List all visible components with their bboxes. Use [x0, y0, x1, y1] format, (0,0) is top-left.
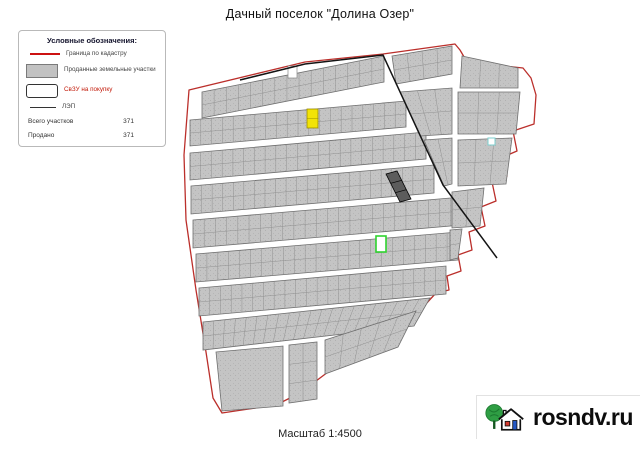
- red-boundary-line-swatch: [30, 53, 60, 55]
- total-parcels-label: Всего участков: [28, 118, 73, 125]
- legend-item-label: Граница по кадастру: [66, 51, 127, 58]
- rosndv-logo-icon: [485, 400, 527, 436]
- parcel-strip-e-block-2: [458, 92, 520, 134]
- total-parcels-value: 371: [123, 118, 134, 125]
- parcel-strip-e-block-4: [458, 138, 512, 186]
- green-outlined-parcel: [376, 236, 386, 252]
- legend-box: Условные обозначения: Граница по кадастр…: [18, 30, 166, 147]
- legend-item-label: ЛЭП: [62, 104, 75, 111]
- sold-parcels-value: 371: [123, 132, 134, 139]
- legend-item-label: Проданные земельные участки: [64, 67, 156, 74]
- total-parcels-row: Всего участков 371: [28, 118, 134, 125]
- legend-item-label: СвЗУ на покупку: [64, 87, 112, 94]
- parcel-strip-s-block-1: [289, 342, 317, 403]
- sold-parcels-label: Продано: [28, 132, 54, 139]
- legend-item-parcels-for-sale: СвЗУ на покупку: [26, 84, 158, 98]
- watermark-text: rosndv.ru: [533, 404, 633, 431]
- watermark-badge: rosndv.ru: [476, 395, 640, 439]
- teal-marked-parcel: [488, 138, 495, 145]
- parcel-strip-e-block-6: [450, 229, 462, 260]
- gray-parcel-swatch: [26, 64, 58, 78]
- legend-item-cadastre-boundary: Граница по кадастру: [26, 51, 158, 58]
- legend-item-sold-parcels: Проданные земельные участки: [26, 64, 158, 78]
- legend-title: Условные обозначения:: [26, 36, 158, 45]
- legend-item-power-line: ЛЭП: [26, 104, 158, 111]
- white-parcel-swatch: [26, 84, 58, 98]
- parcel-strip-ne-block-2: [460, 56, 518, 88]
- parcel-strip-sw-large-parcel: [216, 346, 283, 411]
- power-line-swatch: [30, 107, 56, 108]
- sold-parcels-row: Продано 371: [28, 132, 134, 139]
- parcel-strip-e-block-5: [452, 188, 484, 228]
